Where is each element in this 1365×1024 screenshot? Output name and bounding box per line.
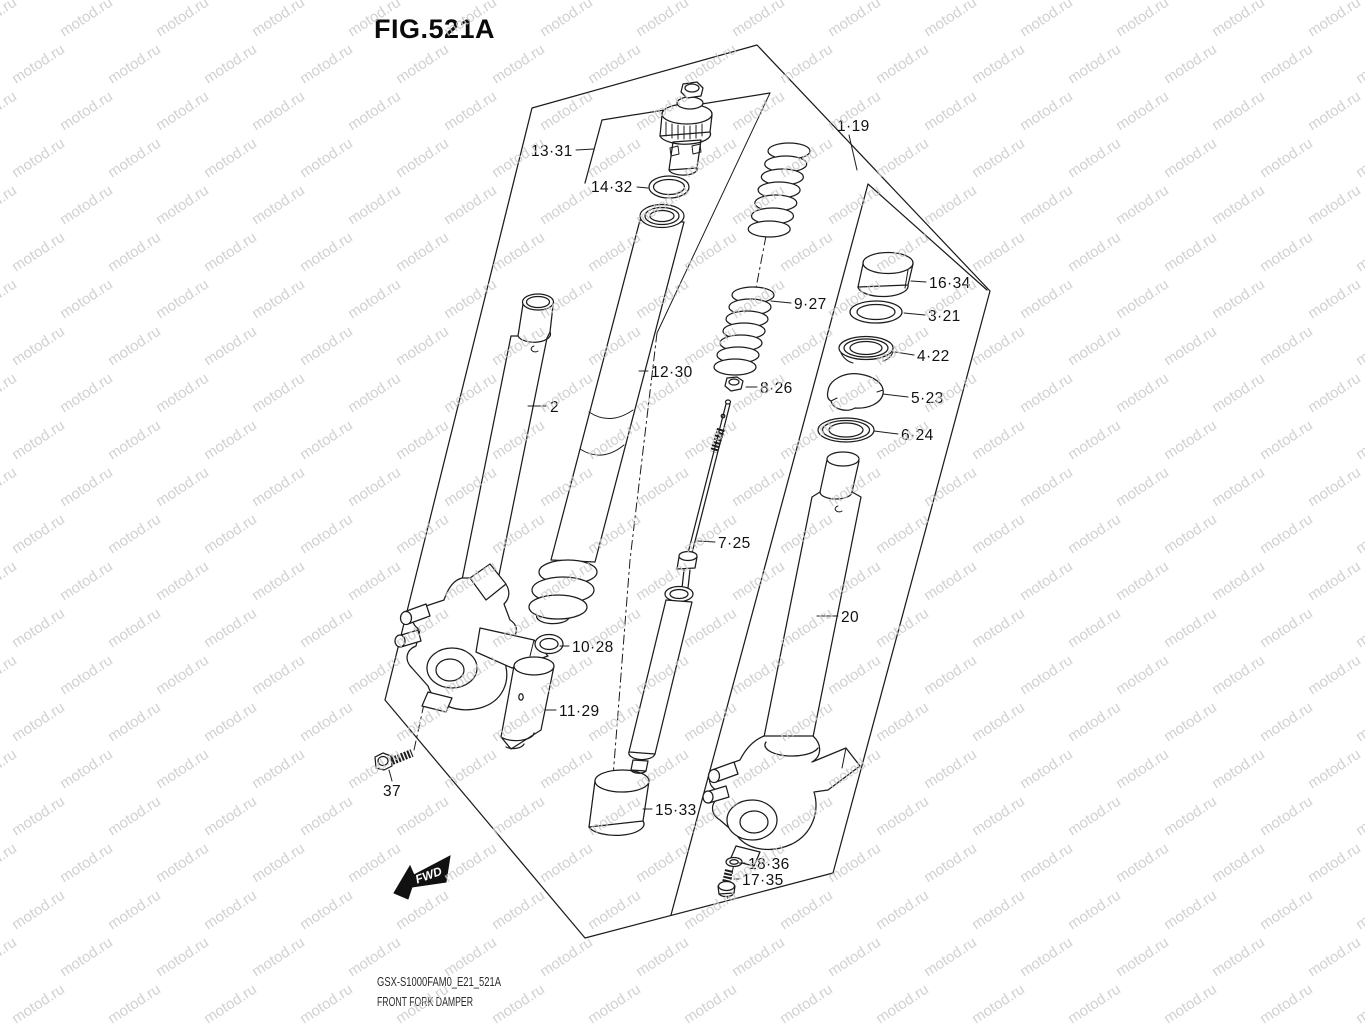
watermark-text: motod.ru	[1353, 981, 1365, 1024]
watermark-text: motod.ru	[585, 981, 644, 1024]
part-label-6-24: 6·24	[901, 427, 934, 444]
damper-rod	[677, 400, 731, 588]
watermark-text: motod.ru	[1353, 605, 1365, 652]
watermark-text: motod.ru	[1305, 182, 1364, 229]
parts-catalog-page: FWD FIG.521A GSX-S1000FAM0_E21_521A FRON…	[0, 0, 1365, 1024]
watermark-text: motod.ru	[393, 229, 452, 276]
watermark-text: motod.ru	[777, 229, 836, 276]
watermark-text: motod.ru	[1305, 746, 1364, 793]
watermark-text: motod.ru	[0, 464, 20, 511]
watermark-text: motod.ru	[681, 699, 740, 746]
watermark-text: motod.ru	[1353, 323, 1365, 370]
watermark-text: motod.ru	[441, 370, 500, 417]
watermark-text: motod.ru	[1161, 699, 1220, 746]
flange-bolt	[375, 753, 412, 770]
watermark-text: motod.ru	[1353, 699, 1365, 746]
watermark-text: motod.ru	[921, 840, 980, 887]
watermark-text: motod.ru	[249, 0, 308, 40]
watermark-text: motod.ru	[249, 840, 308, 887]
watermark-text: motod.ru	[1113, 276, 1172, 323]
watermark-text: motod.ru	[0, 840, 20, 887]
slide-bushing	[501, 657, 554, 749]
watermark-text: motod.ru	[57, 182, 116, 229]
watermark-text: motod.ru	[249, 652, 308, 699]
watermark-text: motod.ru	[105, 699, 164, 746]
watermark-text: motod.ru	[777, 323, 836, 370]
leader-line-3-21	[904, 313, 925, 315]
watermark-text: motod.ru	[1161, 41, 1220, 88]
watermark-text: motod.ru	[489, 887, 548, 934]
watermark-text: motod.ru	[57, 746, 116, 793]
watermark-text: motod.ru	[57, 558, 116, 605]
watermark-text: motod.ru	[393, 323, 452, 370]
right-outer-tube	[764, 452, 861, 737]
watermark-text: motod.ru	[297, 887, 356, 934]
watermark-text: motod.ru	[297, 511, 356, 558]
watermark-text: motod.ru	[201, 887, 260, 934]
watermark-text: motod.ru	[201, 41, 260, 88]
watermark-text: motod.ru	[1305, 276, 1364, 323]
watermark-text: motod.ru	[1113, 934, 1172, 981]
watermark-text: motod.ru	[633, 934, 692, 981]
watermark-text: motod.ru	[1305, 0, 1364, 40]
spacer-seat	[850, 301, 902, 323]
watermark-text: motod.ru	[201, 605, 260, 652]
leader-line-7-25	[698, 541, 715, 542]
watermark-text: motod.ru	[1065, 981, 1124, 1024]
watermark-text: motod.ru	[345, 276, 404, 323]
watermark-text: motod.ru	[1161, 417, 1220, 464]
watermark-text: motod.ru	[921, 934, 980, 981]
watermark-text: motod.ru	[441, 276, 500, 323]
watermark-text: motod.ru	[297, 699, 356, 746]
watermark-text: motod.ru	[1257, 323, 1316, 370]
leader-line-14-32	[637, 187, 648, 188]
watermark-text: motod.ru	[201, 981, 260, 1024]
figure-title: FIG.521A	[374, 14, 495, 44]
watermark-text: motod.ru	[969, 793, 1028, 840]
watermark-text: motod.ru	[1017, 840, 1076, 887]
watermark-text: motod.ru	[9, 511, 68, 558]
watermark-text: motod.ru	[153, 182, 212, 229]
watermark-text: motod.ru	[537, 0, 596, 40]
watermark-text: motod.ru	[681, 229, 740, 276]
watermark-text: motod.ru	[825, 182, 884, 229]
watermark-text: motod.ru	[1017, 746, 1076, 793]
part-label-13-31: 13·31	[531, 143, 573, 160]
part-label-15-33: 15·33	[655, 802, 697, 819]
watermark-text: motod.ru	[345, 558, 404, 605]
watermark-text: motod.ru	[249, 934, 308, 981]
fork-spring-upper	[748, 143, 810, 237]
watermark-text: motod.ru	[633, 840, 692, 887]
watermark-text: motod.ru	[345, 934, 404, 981]
watermark-text: motod.ru	[1161, 981, 1220, 1024]
watermark-text: motod.ru	[489, 41, 548, 88]
part-label-12-30: 12·30	[651, 364, 693, 381]
part-label-20: 20	[841, 609, 859, 626]
leader-line-1-19	[849, 135, 857, 170]
watermark-text: motod.ru	[153, 934, 212, 981]
watermark-text: motod.ru	[825, 652, 884, 699]
watermark-text: motod.ru	[105, 887, 164, 934]
watermark-text: motod.ru	[585, 41, 644, 88]
watermark-text: motod.ru	[1161, 135, 1220, 182]
watermark-text: motod.ru	[921, 746, 980, 793]
watermark-text: motod.ru	[873, 511, 932, 558]
watermark-text: motod.ru	[0, 746, 20, 793]
watermark-text: motod.ru	[1209, 934, 1268, 981]
watermark-text: motod.ru	[729, 558, 788, 605]
bottom-case	[589, 770, 649, 835]
watermark-text: motod.ru	[1209, 558, 1268, 605]
watermark-text: motod.ru	[57, 276, 116, 323]
watermark-text: motod.ru	[441, 746, 500, 793]
watermark-text: motod.ru	[1353, 229, 1365, 276]
watermark-text: motod.ru	[249, 370, 308, 417]
watermark-text: motod.ru	[345, 88, 404, 135]
watermark-text: motod.ru	[105, 135, 164, 182]
part-label-10-28: 10·28	[572, 639, 614, 656]
watermark-text: motod.ru	[969, 135, 1028, 182]
watermark-text: motod.ru	[393, 793, 452, 840]
watermark-text: motod.ru	[1257, 417, 1316, 464]
axle-bracket-right	[703, 736, 860, 866]
watermark-text: motod.ru	[297, 323, 356, 370]
watermark-text: motod.ru	[489, 229, 548, 276]
watermark-text: motod.ru	[0, 276, 20, 323]
watermark-text: motod.ru	[9, 887, 68, 934]
watermark-text: motod.ru	[297, 417, 356, 464]
watermark-text: motod.ru	[1017, 558, 1076, 605]
watermark-text: motod.ru	[1257, 605, 1316, 652]
watermark-text: motod.ru	[729, 0, 788, 40]
footer-figure-name: FRONT FORK DAMPER	[377, 995, 473, 1009]
oil-seal	[818, 418, 874, 442]
watermark-text: motod.ru	[873, 41, 932, 88]
watermark-text: motod.ru	[297, 41, 356, 88]
watermark-text: motod.ru	[1257, 135, 1316, 182]
watermark-text: motod.ru	[0, 370, 20, 417]
watermark-text: motod.ru	[105, 605, 164, 652]
watermark-text: motod.ru	[1017, 652, 1076, 699]
watermark-text: motod.ru	[1209, 182, 1268, 229]
watermark-text: motod.ru	[57, 652, 116, 699]
watermark-text: motod.ru	[537, 370, 596, 417]
watermark-text: motod.ru	[1113, 652, 1172, 699]
leader-line-13-31	[576, 149, 594, 150]
leader-line-6-24	[874, 431, 898, 434]
watermark-text: motod.ru	[1113, 840, 1172, 887]
watermark-text: motod.ru	[9, 41, 68, 88]
watermark-text: motod.ru	[873, 981, 932, 1024]
watermark-text: motod.ru	[1209, 652, 1268, 699]
part-label-5-23: 5·23	[911, 390, 944, 407]
watermark-text: motod.ru	[1113, 0, 1172, 40]
fork-cap-assembly	[660, 82, 712, 175]
watermark-text: motod.ru	[873, 887, 932, 934]
watermark-text: motod.ru	[1017, 276, 1076, 323]
washer	[535, 635, 563, 654]
watermark-text: motod.ru	[153, 276, 212, 323]
watermark-text: motod.ru	[1209, 464, 1268, 511]
watermark-text: motod.ru	[0, 182, 20, 229]
leader-line-16-34	[911, 281, 926, 282]
watermark-text: motod.ru	[393, 417, 452, 464]
watermark-text: motod.ru	[1305, 652, 1364, 699]
watermark-text: motod.ru	[873, 605, 932, 652]
watermark-text: motod.ru	[1065, 41, 1124, 88]
watermark-text: motod.ru	[201, 417, 260, 464]
watermark-text: motod.ru	[105, 323, 164, 370]
watermark-text: motod.ru	[1017, 0, 1076, 40]
watermark-text: motod.ru	[1257, 981, 1316, 1024]
watermark-text: motod.ru	[921, 558, 980, 605]
watermark-text: motod.ru	[1305, 370, 1364, 417]
footer-model-code: GSX-S1000FAM0_E21_521A	[377, 975, 501, 989]
watermark-text: motod.ru	[537, 182, 596, 229]
watermark-text: motod.ru	[585, 887, 644, 934]
watermark-text: motod.ru	[969, 229, 1028, 276]
o-ring	[649, 176, 689, 198]
watermark-text: motod.ru	[873, 135, 932, 182]
watermark-text: motod.ru	[1305, 464, 1364, 511]
watermark-text: motod.ru	[1209, 0, 1268, 40]
watermark-text: motod.ru	[537, 934, 596, 981]
watermark-text: motod.ru	[921, 88, 980, 135]
watermark-text: motod.ru	[969, 981, 1028, 1024]
watermark-text: motod.ru	[201, 135, 260, 182]
leader-line-4-22	[895, 352, 914, 355]
watermark-text: motod.ru	[1353, 887, 1365, 934]
watermark-text: motod.ru	[1257, 229, 1316, 276]
watermark-text: motod.ru	[105, 417, 164, 464]
watermark-text: motod.ru	[1065, 511, 1124, 558]
watermark-text: motod.ru	[1065, 323, 1124, 370]
watermark-text: motod.ru	[297, 135, 356, 182]
watermark-text: motod.ru	[57, 840, 116, 887]
watermark-text: motod.ru	[153, 370, 212, 417]
watermark-text: motod.ru	[969, 417, 1028, 464]
watermark-text: motod.ru	[9, 605, 68, 652]
fork-spring-lower	[714, 287, 774, 375]
watermark-text: motod.ru	[1353, 793, 1365, 840]
watermark-text: motod.ru	[729, 934, 788, 981]
spacer	[858, 253, 913, 297]
watermark-text: motod.ru	[1017, 464, 1076, 511]
watermark-text: motod.ru	[969, 41, 1028, 88]
part-label-11-29: 11·29	[559, 703, 600, 720]
watermark-text: motod.ru	[0, 652, 20, 699]
leader-line-9-27	[771, 301, 791, 303]
watermark-text: motod.ru	[1209, 370, 1268, 417]
watermark-text: motod.ru	[1161, 605, 1220, 652]
part-label-17-35: 17·35	[742, 872, 784, 889]
watermark-text: motod.ru	[9, 981, 68, 1024]
watermark-text: motod.ru	[825, 370, 884, 417]
watermark-text: motod.ru	[9, 323, 68, 370]
watermark-text: motod.ru	[969, 323, 1028, 370]
watermark-text: motod.ru	[1161, 887, 1220, 934]
part-label-9-27: 9·27	[794, 296, 827, 313]
watermark-text: motod.ru	[777, 887, 836, 934]
watermark-text: motod.ru	[1065, 887, 1124, 934]
watermark-text: motod.ru	[201, 229, 260, 276]
watermark-text: motod.ru	[345, 182, 404, 229]
watermark-text: motod.ru	[1161, 229, 1220, 276]
watermark-text: motod.ru	[57, 0, 116, 40]
watermark-text: motod.ru	[633, 464, 692, 511]
watermark-text: motod.ru	[201, 699, 260, 746]
leader-line-5-23	[883, 394, 908, 397]
watermark-text: motod.ru	[105, 229, 164, 276]
watermark-text: motod.ru	[1113, 558, 1172, 605]
watermark-text: motod.ru	[1113, 88, 1172, 135]
fwd-arrow: FWD	[394, 856, 450, 899]
watermark-text: motod.ru	[0, 88, 20, 135]
watermark-text: motod.ru	[825, 934, 884, 981]
watermark-text: motod.ru	[681, 981, 740, 1024]
watermark-text: motod.ru	[777, 41, 836, 88]
watermark-text: motod.ru	[1065, 135, 1124, 182]
watermark-text: motod.ru	[1065, 229, 1124, 276]
watermark-text: motod.ru	[249, 276, 308, 323]
watermark-text: motod.ru	[1257, 793, 1316, 840]
watermark-text: motod.ru	[873, 699, 932, 746]
watermark-text: motod.ru	[441, 182, 500, 229]
watermark-text: motod.ru	[1065, 605, 1124, 652]
watermark-text: motod.ru	[1017, 370, 1076, 417]
watermark-text: motod.ru	[249, 88, 308, 135]
watermark-text: motod.ru	[441, 840, 500, 887]
watermark-text: motod.ru	[9, 229, 68, 276]
watermark-text: motod.ru	[921, 652, 980, 699]
part-label-3-21: 3·21	[928, 308, 961, 325]
watermark-text: motod.ru	[201, 511, 260, 558]
watermark-text: motod.ru	[0, 934, 20, 981]
watermark-text: motod.ru	[249, 464, 308, 511]
watermark-text: motod.ru	[1257, 887, 1316, 934]
watermark-text: motod.ru	[249, 182, 308, 229]
watermark-text: motod.ru	[1209, 746, 1268, 793]
watermark-text: motod.ru	[1161, 323, 1220, 370]
stopper-ring	[827, 374, 883, 411]
watermark-text: motod.ru	[1353, 417, 1365, 464]
watermark-text: motod.ru	[201, 323, 260, 370]
gasket	[726, 858, 742, 867]
watermark-text: motod.ru	[345, 840, 404, 887]
dust-seal	[839, 337, 893, 364]
part-label-7-25: 7·25	[718, 535, 751, 552]
watermark-text: motod.ru	[489, 793, 548, 840]
watermark-text: motod.ru	[249, 558, 308, 605]
watermark-text: motod.ru	[921, 0, 980, 40]
watermark-text: motod.ru	[153, 746, 212, 793]
part-label-16-34: 16·34	[929, 275, 971, 292]
watermark-text: motod.ru	[1257, 41, 1316, 88]
watermark-text: motod.ru	[297, 793, 356, 840]
watermark-text: motod.ru	[1065, 699, 1124, 746]
watermark-text: motod.ru	[1353, 135, 1365, 182]
watermark-text: motod.ru	[1113, 746, 1172, 793]
watermark-text: motod.ru	[201, 793, 260, 840]
lock-nut	[725, 377, 743, 391]
watermark-text: motod.ru	[9, 793, 68, 840]
watermark-text: motod.ru	[1305, 558, 1364, 605]
watermark-text: motod.ru	[1161, 793, 1220, 840]
part-label-1-19: 1·19	[837, 118, 870, 135]
watermark-text: motod.ru	[441, 934, 500, 981]
watermark-text: motod.ru	[105, 511, 164, 558]
axis-centerline-center	[613, 93, 770, 777]
watermark-text: motod.ru	[9, 699, 68, 746]
watermark-text: motod.ru	[441, 88, 500, 135]
watermark-text: motod.ru	[681, 417, 740, 464]
part-label-4-22: 4·22	[917, 348, 950, 365]
watermark-text: motod.ru	[57, 464, 116, 511]
watermark-text: motod.ru	[153, 840, 212, 887]
watermark-text: motod.ru	[1017, 182, 1076, 229]
watermark-text: motod.ru	[969, 699, 1028, 746]
watermark-text: motod.ru	[921, 464, 980, 511]
watermark-text: motod.ru	[1305, 934, 1364, 981]
watermark-text: motod.ru	[1113, 464, 1172, 511]
damper-cartridge	[629, 587, 693, 774]
watermark-text: motod.ru	[393, 41, 452, 88]
watermark-text: motod.ru	[1065, 417, 1124, 464]
watermark-text: motod.ru	[1065, 793, 1124, 840]
watermark-text: motod.ru	[153, 652, 212, 699]
watermark-text: motod.ru	[777, 981, 836, 1024]
part-label-8-26: 8·26	[760, 380, 793, 397]
part-label-14-32: 14·32	[591, 179, 633, 196]
watermark-text: motod.ru	[153, 88, 212, 135]
watermark-text: motod.ru	[57, 934, 116, 981]
watermark-text: motod.ru	[57, 370, 116, 417]
axis-centerline-left	[414, 704, 424, 750]
watermark-text: motod.ru	[1209, 840, 1268, 887]
watermark-text: motod.ru	[1161, 511, 1220, 558]
drain-bolt	[718, 870, 735, 897]
watermark-text: motod.ru	[1257, 511, 1316, 558]
watermark-text: motod.ru	[1017, 88, 1076, 135]
watermark-text: motod.ru	[969, 605, 1028, 652]
watermark-text: motod.ru	[105, 981, 164, 1024]
watermark-text: motod.ru	[825, 840, 884, 887]
watermark-text: motod.ru	[1353, 41, 1365, 88]
watermark-text: motod.ru	[1257, 699, 1316, 746]
watermark-text: motod.ru	[585, 135, 644, 182]
watermark-text: motod.ru	[1305, 840, 1364, 887]
watermark-text: motod.ru	[153, 0, 212, 40]
watermark-text: motod.ru	[969, 511, 1028, 558]
watermark-text: motod.ru	[0, 0, 20, 40]
part-label-2: 2	[550, 399, 559, 416]
watermark-text: motod.ru	[153, 464, 212, 511]
watermark-text: motod.ru	[921, 182, 980, 229]
watermark-text: motod.ru	[729, 464, 788, 511]
watermark-text: motod.ru	[105, 41, 164, 88]
part-label-37: 37	[383, 783, 401, 800]
watermark-text: motod.ru	[297, 981, 356, 1024]
watermark-text: motod.ru	[57, 88, 116, 135]
watermark-text: motod.ru	[633, 0, 692, 40]
watermark-text: motod.ru	[1353, 511, 1365, 558]
watermark-text: motod.ru	[1209, 88, 1268, 135]
watermark-text: motod.ru	[297, 229, 356, 276]
watermark-text: motod.ru	[1209, 276, 1268, 323]
watermark-text: motod.ru	[345, 370, 404, 417]
